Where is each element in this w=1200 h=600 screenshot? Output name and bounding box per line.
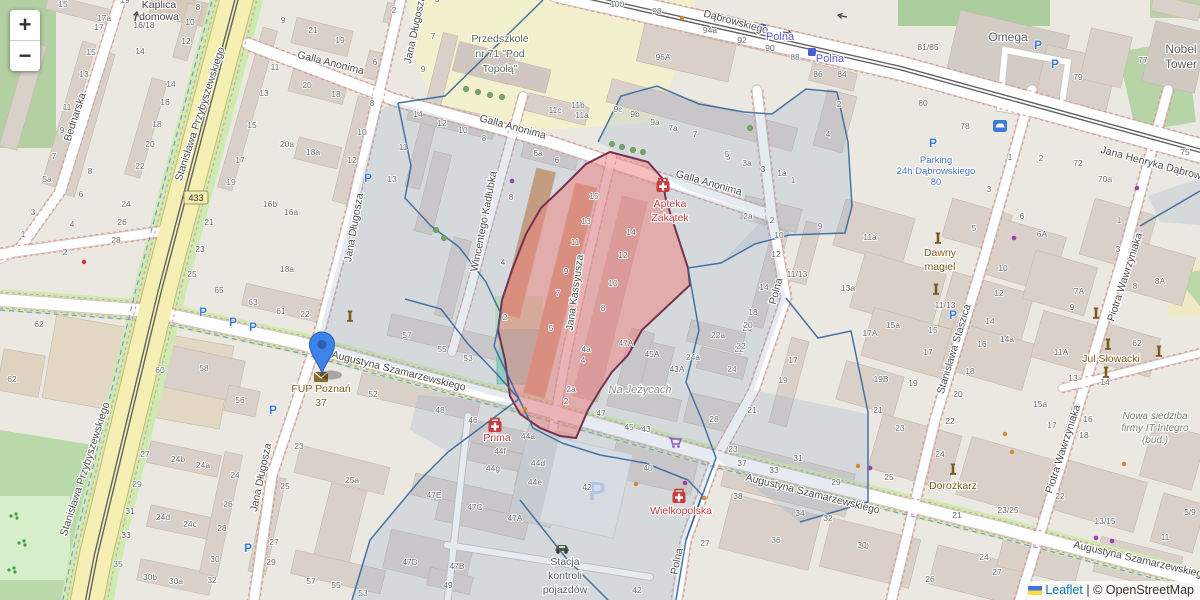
poi-label: Omega (988, 30, 1028, 44)
house-number: 6 (79, 189, 84, 199)
poi-dot-orange (1003, 432, 1007, 436)
house-number: 18 (152, 119, 162, 129)
house-number: 75 (1180, 147, 1190, 157)
house-number: 11 (1161, 532, 1170, 542)
house-number: 18 (748, 307, 758, 317)
house-number: 9 (818, 221, 823, 231)
house-number: 7 (52, 151, 57, 161)
house-number: 24 (230, 470, 240, 480)
house-number: 48 (435, 405, 445, 415)
house-number: 92 (737, 35, 747, 45)
house-number: 62 (7, 374, 17, 384)
poi-dot-orange (1010, 450, 1014, 454)
house-number: 4 (826, 129, 831, 139)
house-number: 56 (235, 395, 245, 405)
house-number: 16 (1083, 414, 1093, 424)
house-number: 11/13 (935, 300, 956, 310)
house-number: 18 (1079, 430, 1089, 440)
house-number: 62 (1132, 338, 1142, 348)
house-number: 22 (1055, 491, 1065, 501)
house-number: 43 (641, 424, 651, 434)
poi-label: nr 71 "Pod (475, 48, 524, 60)
house-number: 7 (556, 288, 561, 298)
house-number: 55 (331, 580, 341, 590)
house-number: 23 (294, 441, 304, 451)
house-number: 9b (630, 109, 640, 119)
tree-icon (487, 92, 492, 97)
house-number: 15 (58, 0, 68, 9)
house-number: 47A (507, 513, 522, 523)
house-number: 26 (117, 217, 127, 227)
house-number: 47E (426, 490, 441, 500)
house-number: 6a (533, 148, 543, 158)
house-number: 10 (998, 263, 1008, 273)
house-number: 23/25 (997, 505, 1019, 515)
house-number: 3 (31, 207, 36, 217)
poi-dot-purple (1110, 539, 1115, 544)
house-number: 31 (793, 453, 803, 463)
house-number: 44g (486, 463, 500, 473)
house-number: 9 (421, 64, 426, 74)
house-number: 11 (399, 142, 408, 152)
poi-dot-orange (680, 16, 684, 20)
poi-label: Wielkopolska (650, 505, 712, 517)
house-number: 78 (960, 121, 970, 131)
poi-label: Na Jeżycach (609, 384, 672, 396)
house-number: 29 (132, 479, 142, 489)
house-number: 40 (643, 463, 653, 473)
poi-label: Dawny (924, 247, 957, 259)
house-number: 16a (284, 207, 298, 217)
poi-dot-purple (510, 179, 515, 184)
building (1022, 250, 1097, 316)
poi-label: Polna (816, 53, 845, 65)
house-number: 17 (788, 355, 798, 365)
house-number: 18a (280, 264, 294, 274)
house-number: 42 (582, 482, 592, 492)
house-number: 98 (652, 6, 662, 16)
house-number: 14 (1100, 377, 1110, 387)
house-number: 77 (1138, 55, 1148, 65)
house-number: 65 (214, 285, 224, 295)
house-number: 12 (994, 288, 1004, 298)
house-number: 96A (655, 52, 670, 62)
house-number: 79 (1073, 72, 1083, 82)
tree-icon (630, 147, 635, 152)
house-number: 10 (774, 230, 784, 240)
poi-dot-orange (856, 464, 860, 468)
poi-dot-purple (1012, 236, 1017, 241)
ukraine-flag-icon (1028, 586, 1042, 595)
house-number: 19 (120, 0, 130, 5)
house-number: 5a (42, 174, 52, 184)
house-number: 22 (736, 341, 746, 351)
house-number: 19B (873, 374, 888, 384)
house-number: 23 (895, 423, 905, 433)
house-number: 17A (862, 328, 877, 338)
house-number: 70a (1098, 174, 1112, 184)
house-number: 1a (777, 168, 787, 178)
house-number: 8 (509, 192, 514, 202)
house-number: 24a (196, 460, 210, 470)
poi-dot-orange (523, 407, 527, 411)
house-number: 62 (34, 319, 44, 329)
route-badge: 433 (184, 191, 208, 204)
parking-icon: P (269, 403, 277, 417)
house-number: 30b (143, 572, 157, 582)
poi-label: Nowa siedziba (1122, 411, 1187, 422)
house-number: 2a (566, 384, 576, 394)
house-number: 8 (196, 2, 201, 12)
house-number: 17 (923, 347, 933, 357)
house-number: 5 (549, 323, 554, 333)
house-number: 15 (589, 191, 599, 201)
house-number: 1 (1117, 215, 1122, 225)
house-number: 29 (266, 557, 276, 567)
house-number: 13 (1068, 373, 1078, 383)
house-number: 5 (972, 223, 977, 233)
house-number: 3 (761, 164, 766, 174)
house-number: 2 (1039, 153, 1044, 163)
house-number: 47 (596, 408, 606, 418)
attribution-bar: Leaflet | © OpenStreetMap (1020, 581, 1200, 600)
house-number: 30 (857, 540, 867, 550)
house-number: 26 (223, 499, 233, 509)
house-number: 7A (1074, 286, 1085, 296)
house-number: 13 (259, 88, 269, 98)
house-number: 11b (571, 100, 585, 110)
house-number: 44d (531, 458, 545, 468)
poi-label: Nobel (1165, 42, 1196, 56)
parking-icon: P (1034, 38, 1042, 52)
house-number: 58 (199, 363, 209, 373)
house-number: 3 (1116, 244, 1121, 254)
map-canvas[interactable]: PPPPPPPPPPP433 151917a1716/1814151311975… (0, 0, 1200, 600)
house-number: 24c (183, 519, 197, 529)
house-number: 31 (125, 506, 135, 516)
house-number: 19 (908, 378, 918, 388)
poi-label: kontroli (548, 570, 582, 582)
house-number: 10 (458, 125, 468, 135)
poi-label: domowa (139, 11, 179, 23)
house-number: 24 (121, 199, 131, 209)
house-number: 21 (952, 510, 962, 520)
map-tiles: PPPPPPPPPPP433 151917a1716/1814151311975… (0, 0, 1200, 600)
house-number: 17 (235, 155, 245, 165)
poi-label: Tower (1165, 57, 1197, 71)
house-number: 35 (113, 559, 123, 569)
house-number: 17 (94, 22, 104, 32)
house-number: 11c (548, 105, 562, 115)
poi-dot-orange (702, 496, 706, 500)
house-number: 94a (703, 25, 717, 35)
house-number: 86 (813, 69, 823, 79)
house-number: 37 (737, 458, 747, 468)
house-number: 24 (727, 364, 737, 374)
house-number: 2 (392, 5, 397, 15)
tree-icon (475, 89, 480, 94)
oneway-arrow-icon (838, 13, 848, 20)
house-number: 25 (884, 472, 894, 482)
house-number: 33 (121, 530, 131, 540)
house-number: 52 (368, 389, 378, 399)
house-number: 5 (435, 0, 440, 4)
house-number: 84 (837, 69, 847, 79)
house-number: 53 (358, 588, 368, 598)
house-number: 57 (306, 576, 316, 586)
house-number: 21 (747, 405, 757, 415)
house-number: 24a (686, 352, 700, 362)
house-number: 100 (610, 0, 624, 9)
house-number: 5/9 (1184, 507, 1196, 517)
poi-label: pojazdów (543, 584, 588, 596)
house-number: 2 (837, 99, 842, 109)
house-number: 13/15 (1094, 516, 1116, 526)
house-number: 57 (402, 330, 412, 340)
house-number: 15a (886, 320, 900, 330)
house-number: 44a (521, 431, 535, 441)
poi-dot-purple (683, 481, 688, 486)
house-number: 16 (977, 339, 987, 349)
house-number: 25 (280, 481, 290, 491)
house-number: 20 (302, 80, 312, 90)
tree-icon (441, 235, 446, 240)
monument-icon (1093, 308, 1099, 319)
poi-label: 24h Dąbrowskiego (897, 166, 976, 177)
house-number: 6 (555, 155, 560, 165)
house-number: 44f (494, 446, 506, 456)
house-number: 15 (247, 120, 257, 130)
house-number: 9c (614, 104, 624, 114)
poi-label: (bud.) (1142, 435, 1168, 446)
house-number: 3 (987, 184, 992, 194)
house-number: 20 (145, 139, 155, 149)
poi-label: magiel (925, 261, 956, 273)
house-number: 4 (501, 257, 506, 267)
house-number: 13a (841, 283, 855, 293)
poi-dot-orange (634, 482, 638, 486)
house-number: 14 (135, 46, 145, 56)
openstreetmap-link[interactable]: © OpenStreetMap (1093, 583, 1194, 597)
house-number: 10 (185, 17, 195, 27)
house-number: 55 (437, 344, 447, 354)
transit-stop-icon (808, 48, 816, 56)
building (0, 349, 45, 398)
zoom-in-button[interactable]: + (10, 10, 40, 41)
house-number: 29 (831, 477, 841, 487)
house-number: 60 (155, 365, 165, 375)
house-number: 34 (795, 508, 805, 518)
tree-icon (747, 125, 752, 130)
poi-label: Stacja (550, 556, 579, 568)
house-number: 14 (759, 282, 769, 292)
green-area (0, 496, 70, 580)
house-number: 16b (263, 199, 277, 209)
house-number: 22 (135, 161, 145, 171)
house-number: 32 (207, 575, 217, 585)
house-number: 21 (308, 25, 318, 35)
house-number: 15 (928, 325, 938, 335)
house-number: 21 (204, 217, 214, 227)
house-number: 45A (644, 349, 659, 359)
house-number: 8A (1155, 276, 1166, 286)
poi-dot-purple (1094, 536, 1099, 541)
house-number: 11A (1054, 347, 1069, 357)
house-number: 28 (709, 414, 719, 424)
house-number: 90 (765, 43, 775, 53)
house-number: 18a (306, 147, 320, 157)
building (836, 361, 905, 416)
house-number: 7a (668, 123, 678, 133)
poi-dot-orange (1122, 462, 1126, 466)
poi-label: Jul Słowacki (1082, 353, 1140, 365)
house-number: 11 (571, 237, 580, 247)
house-number: 8 (482, 133, 487, 143)
house-number: 61 (276, 306, 286, 316)
house-number: 12 (181, 36, 191, 46)
house-number: 14 (985, 316, 995, 326)
house-number: 88 (790, 52, 800, 62)
poi-label: Polna (766, 31, 795, 43)
house-number: 11 (271, 62, 280, 72)
house-number: 11/13 (787, 269, 808, 279)
house-number: 27 (700, 538, 710, 548)
poi-label: Prima (483, 432, 511, 444)
house-number: 1 (21, 229, 26, 239)
house-number: 47D (402, 557, 418, 567)
house-number: 24b (171, 454, 185, 464)
poi-label: Parking (920, 155, 952, 166)
house-number: 19 (226, 177, 236, 187)
poi-label: Kaplica (142, 0, 177, 11)
tree-icon (609, 141, 614, 146)
svg-text:433: 433 (188, 193, 203, 203)
house-number: 4 (70, 219, 75, 229)
monument-icon (935, 233, 941, 244)
parking-icon: P (364, 171, 372, 185)
house-number: 12 (771, 249, 781, 259)
house-number: 44e (528, 477, 542, 487)
house-number: 33 (769, 465, 779, 475)
house-number: 8 (370, 98, 375, 108)
poi-label: Topolą" (483, 63, 518, 75)
house-number: 6 (373, 57, 378, 67)
house-number: 2 (770, 215, 775, 225)
house-number: 47C (467, 502, 483, 512)
house-number: 11a (863, 232, 877, 242)
house-number: 27 (992, 567, 1002, 577)
house-number: 12 (347, 155, 357, 165)
house-number: 80 (918, 98, 928, 108)
house-number: 42 (632, 585, 642, 595)
house-number: 10 (608, 278, 618, 288)
poi-dot-purple (868, 466, 873, 471)
house-number: 20a (280, 139, 294, 149)
house-number: 19 (778, 375, 788, 385)
house-number: 1 (791, 175, 796, 185)
house-number: 20 (953, 389, 963, 399)
house-number: 22 (300, 309, 310, 319)
poi-label: 37 (315, 397, 327, 409)
house-number: 14 (413, 109, 423, 119)
house-number: 27 (269, 537, 279, 547)
house-number: 6A (1037, 229, 1048, 239)
house-number: 30a (169, 576, 183, 586)
house-number: 10 (357, 127, 367, 137)
tree-icon (463, 86, 468, 91)
house-number: 24d (156, 512, 170, 522)
house-number: 23 (195, 244, 205, 254)
house-number: 13 (79, 69, 89, 79)
house-number: 9 (281, 15, 286, 25)
house-number: 14a (1000, 334, 1014, 344)
house-number: 7 (693, 129, 698, 139)
house-number: 24 (979, 552, 989, 562)
house-number: 3a (742, 158, 752, 168)
house-number: 13 (387, 174, 397, 184)
house-number: 2 (564, 396, 569, 406)
house-number: 23 (728, 444, 738, 454)
house-number: 53 (463, 353, 473, 363)
house-number: 36 (771, 535, 781, 545)
poi-label: firmy IT Integro (1121, 423, 1189, 434)
house-number: 12 (437, 118, 447, 128)
house-number: 22a (711, 330, 725, 340)
house-number: 9 (564, 266, 569, 276)
house-number: 12 (618, 250, 628, 260)
leaflet-link[interactable]: Leaflet (1045, 583, 1083, 597)
house-number: 43A (669, 364, 684, 374)
house-number: 6 (1020, 211, 1025, 221)
house-number: 5 (725, 149, 730, 159)
house-number: 47A (618, 338, 633, 348)
house-number: 15 (86, 47, 96, 57)
poi-label: FUP Poznań (291, 383, 350, 395)
attribution-separator: | (1083, 583, 1093, 597)
house-number: 11a (575, 110, 589, 120)
house-number: 22 (945, 416, 955, 426)
poi-label: Apteka (654, 198, 687, 210)
poi-label: Dorożkarz (929, 480, 977, 492)
house-number: 4a (581, 344, 591, 354)
tree-icon (433, 227, 438, 232)
house-number: 18 (331, 89, 341, 99)
house-number: 28 (111, 235, 121, 245)
house-number: 14 (626, 227, 636, 237)
poi-label: Zakątek (651, 212, 689, 224)
poi-label: Przedszkole (471, 33, 528, 45)
house-number: 8 (601, 303, 606, 313)
poi-dot-red (82, 260, 86, 264)
parking-icon: P (199, 305, 207, 319)
car-rental-icon (993, 120, 1007, 132)
house-number: 21 (873, 405, 883, 415)
house-number: 15a (1033, 399, 1047, 409)
house-number: 14 (166, 79, 176, 89)
house-number: 72 (1073, 158, 1083, 168)
parking-icon: P (929, 136, 937, 150)
zoom-out-button[interactable]: − (10, 41, 40, 71)
house-number: 2a (743, 211, 753, 221)
parking-icon: P (249, 320, 257, 334)
tree-icon (619, 144, 624, 149)
house-number: 9a (650, 117, 660, 127)
house-number: 20 (743, 320, 753, 330)
house-number: 32 (823, 513, 833, 523)
house-number: 26 (925, 574, 935, 584)
house-number: 1 (1008, 152, 1013, 162)
house-number: 19 (335, 35, 345, 45)
